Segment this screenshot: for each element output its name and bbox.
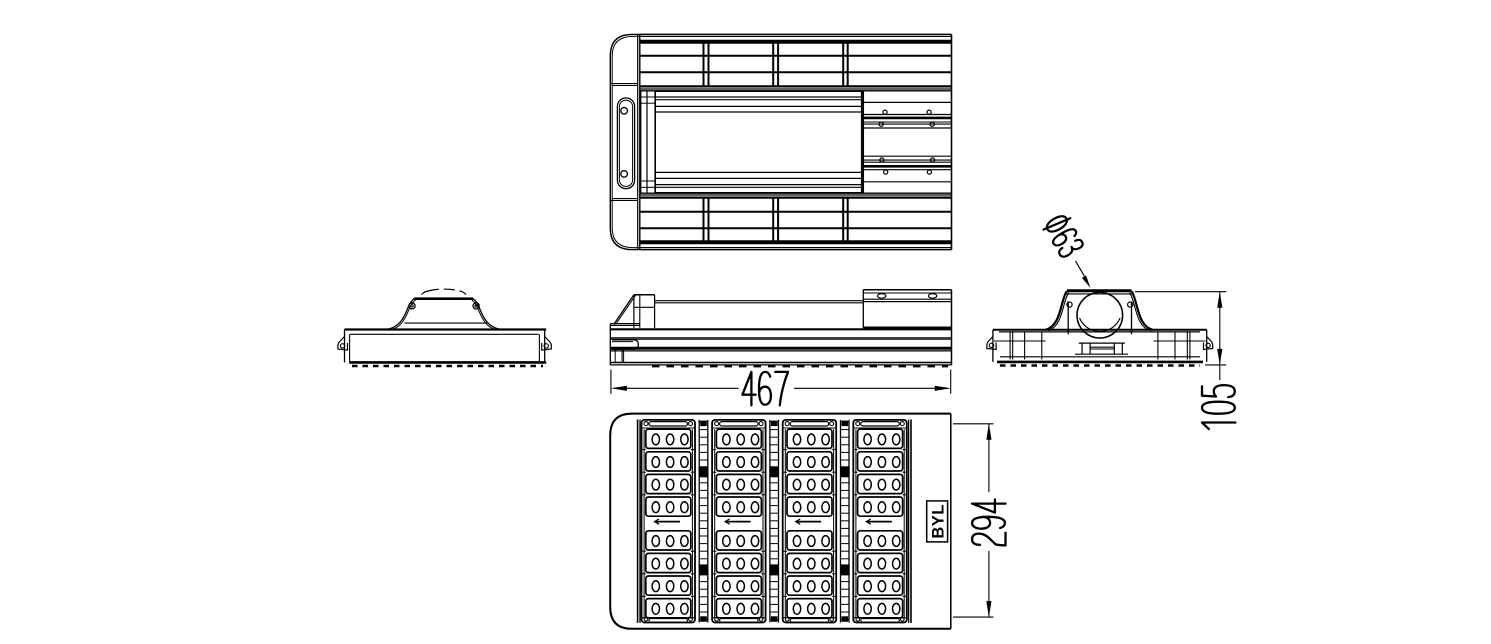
svg-text:BYL: BYL bbox=[930, 504, 948, 539]
